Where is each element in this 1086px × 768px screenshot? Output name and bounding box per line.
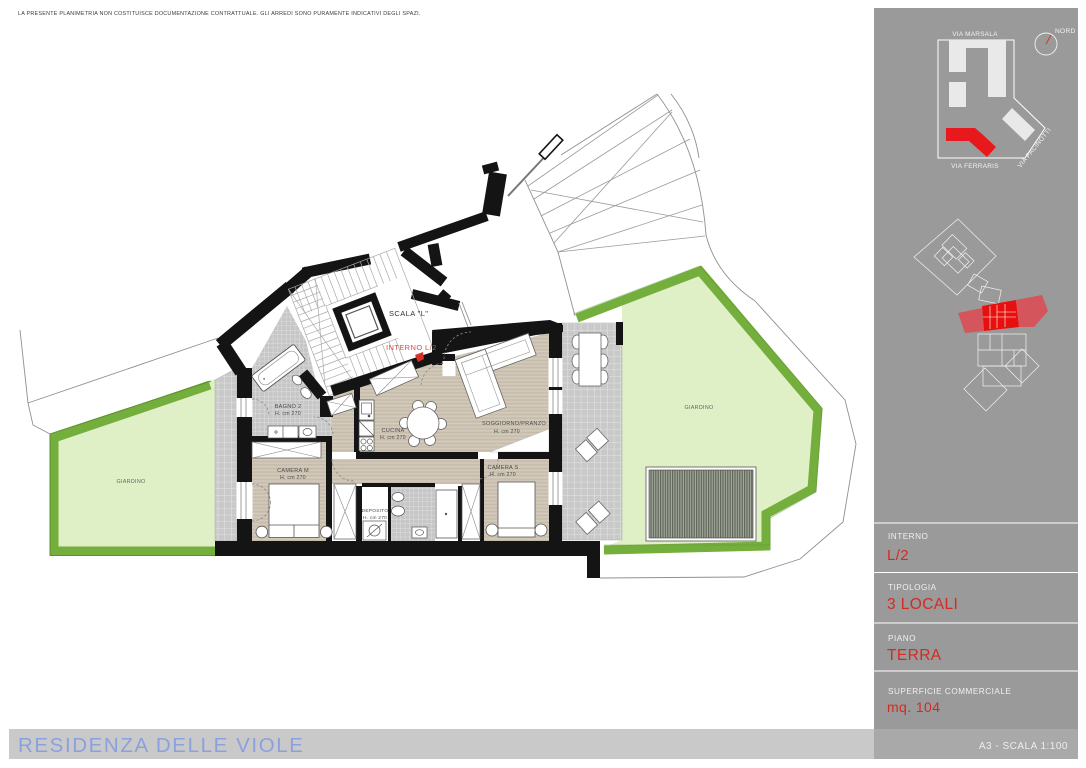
svg-text:3 LOCALI: 3 LOCALI — [887, 596, 958, 613]
svg-text:H. cm 270: H. cm 270 — [490, 472, 516, 478]
svg-text:H. cm 270: H. cm 270 — [363, 515, 387, 521]
svg-text:PIANO: PIANO — [888, 634, 916, 643]
svg-text:H. cm 270: H. cm 270 — [494, 429, 520, 435]
svg-text:H. cm 270: H. cm 270 — [275, 411, 301, 417]
svg-text:INTERNO: INTERNO — [888, 532, 928, 541]
svg-text:GIARDINO: GIARDINO — [684, 405, 713, 411]
svg-text:INTERNO L/2: INTERNO L/2 — [386, 343, 437, 352]
svg-text:CAMERA M: CAMERA M — [277, 468, 309, 474]
svg-text:CUCINA: CUCINA — [382, 428, 405, 434]
svg-text:VIA MARSALA: VIA MARSALA — [952, 31, 998, 38]
svg-text:H. cm 270: H. cm 270 — [380, 435, 406, 441]
svg-text:H. cm 270: H. cm 270 — [280, 475, 306, 481]
svg-text:DEPOSITO: DEPOSITO — [362, 508, 389, 514]
svg-text:SUPERFICIE COMMERCIALE: SUPERFICIE COMMERCIALE — [888, 687, 1011, 696]
svg-text:SOGGIORNO/PRANZO: SOGGIORNO/PRANZO — [482, 421, 546, 427]
svg-text:TERRA: TERRA — [887, 647, 942, 664]
svg-text:RESIDENZA DELLE VIOLE: RESIDENZA DELLE VIOLE — [18, 734, 305, 757]
svg-text:BAGNO 2: BAGNO 2 — [275, 404, 302, 410]
svg-text:VIA FERRARIS: VIA FERRARIS — [951, 163, 999, 170]
svg-text:LA PRESENTE PLANIMETRIA NON CO: LA PRESENTE PLANIMETRIA NON COSTITUISCE … — [18, 11, 421, 17]
svg-text:NORD: NORD — [1055, 28, 1076, 35]
svg-text:CAMERA S: CAMERA S — [488, 465, 519, 471]
svg-text:TIPOLOGIA: TIPOLOGIA — [888, 583, 937, 592]
svg-text:A3 - SCALA 1:100: A3 - SCALA 1:100 — [979, 741, 1068, 752]
svg-text:mq. 104: mq. 104 — [887, 699, 940, 715]
svg-text:SCALA "L": SCALA "L" — [389, 309, 428, 318]
svg-text:GIARDINO: GIARDINO — [116, 479, 145, 485]
svg-text:L/2: L/2 — [887, 547, 909, 564]
